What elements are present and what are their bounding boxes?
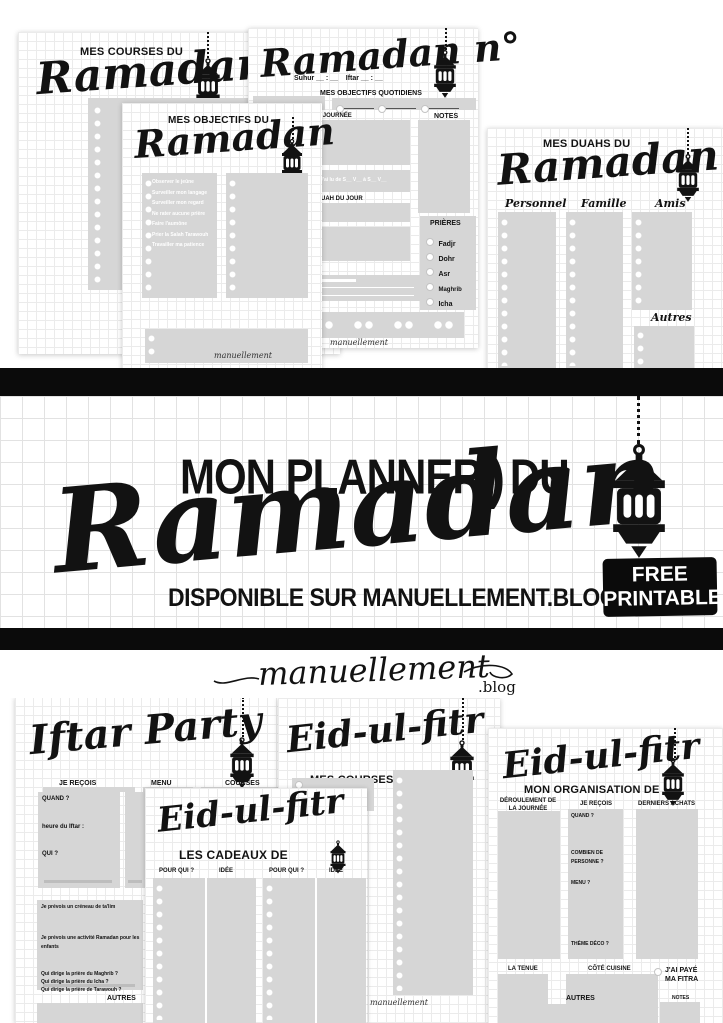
iftar-header-menu: MENU (151, 779, 172, 788)
courses-title: Ramadan (35, 42, 270, 102)
duahs-bullets (635, 329, 646, 367)
objectifs-title: Ramadan (133, 112, 336, 164)
eid-courses-bullets (394, 774, 405, 991)
doua-box (312, 203, 410, 222)
eid-orga-subtitle: MON ORGANISATION DE (524, 784, 660, 796)
faint-caption (43, 984, 135, 987)
prayer-label: Fadjr (438, 241, 455, 248)
objectifs-left-bullets (143, 177, 154, 295)
orga-col3-label: DERNIERS ACHATS (638, 801, 695, 809)
program-box (312, 227, 410, 261)
box-rule (318, 287, 414, 288)
orga-col1-box (498, 811, 560, 959)
page-eid-cadeaux: Eid-ul-fitr LES CADEAUX DE POUR QUI ? ID… (145, 788, 367, 1023)
lantern-chain (242, 697, 244, 737)
prayer-checkbox (426, 283, 434, 291)
faint-caption (128, 880, 142, 883)
fitra-row: J'AI PAYÉ MA FITRA (654, 966, 706, 984)
cadeaux-header-2: IDÉE (219, 868, 233, 876)
objectif-item: Faire l'aumône (152, 219, 217, 230)
notes-box (418, 120, 470, 213)
field-heure-iftar: heure du Iftar : (42, 824, 120, 832)
banner-bottom-bar (0, 628, 723, 650)
lantern-chain (292, 117, 294, 139)
duahs-col-label-personnel: Personnel (505, 198, 566, 209)
objectifs-bottom-bullets (146, 332, 157, 360)
banner-availability: DISPONIBLE SUR MANUELLEMENT.BLOG (168, 583, 617, 613)
orga-field: MENU ? (571, 879, 623, 888)
lantern-chain (637, 396, 640, 444)
flourish-left (212, 668, 260, 688)
prayer-checkbox (426, 238, 434, 246)
duahs-col-label-amis: Amis (655, 198, 686, 209)
courses-checkbox-column (92, 104, 103, 284)
orga-cuisine-label: CÔTÉ CUISINE (588, 966, 631, 974)
lantern-icon (675, 154, 701, 202)
faint-caption (44, 880, 112, 883)
menu-column-sliver (125, 792, 145, 888)
badge-line2: PRINTABLE (603, 586, 717, 612)
prayer-checkbox (426, 268, 434, 276)
page-mes-objectifs: MES OBJECTIFS DU Ramadan Observer le jeû… (122, 103, 322, 371)
ramadan-n-signature: manuellement (330, 338, 388, 347)
badge-line1: FREE (603, 562, 717, 588)
orga-field: QUAND ? (571, 812, 623, 821)
eid-courses-list-box (393, 770, 473, 995)
orga-col3-box (636, 809, 698, 959)
hadith-box (312, 275, 420, 301)
cadeaux-table-2-bullets (264, 882, 275, 1020)
objectif-item: Surveiller mon langage (152, 188, 217, 199)
iftar-label: Iftar __ : __ (346, 75, 383, 82)
eid-cadeaux-title: Eid-ul-fitr (156, 784, 345, 837)
iftar-header-courses: COURSES (225, 779, 260, 788)
iftar-autres-box (37, 1003, 143, 1023)
objectifs-signature: manuellement (214, 351, 272, 360)
fitra-checkbox (654, 968, 662, 976)
prayers-title: PRIÈRES (430, 219, 461, 228)
orga-col2-box: QUAND ? COMBIEN DE PERSONNE ? MENU ? THÈ… (568, 809, 623, 959)
objectifs-right-bullets (227, 177, 238, 295)
iftar-autres-label: AUTRES (107, 994, 136, 1003)
objectif-item: Travailler ma patience (152, 240, 217, 251)
iftar-planning-panel: Je prévois un créneau de ta'lim Je prévo… (37, 900, 143, 990)
objective-checkbox (421, 105, 429, 113)
planning-line: Je prévois une activité Ramadan pour les… (41, 934, 143, 952)
orga-field: COMBIEN DE PERSONNE ? (571, 849, 623, 867)
eid-courses-signature: manuellement (370, 998, 428, 1007)
cadeaux-header-4: IDÉE (329, 868, 343, 876)
prayer-question: Qui dirige la prière de Tarawouh ? (41, 986, 143, 994)
suhur-time: Suhur __ : __ Iftar __ : __ (294, 74, 383, 83)
objectif-item: Ne rater aucune prière (152, 209, 217, 220)
prayer-question: Qui dirige la prière du Maghrib ? (41, 970, 143, 978)
prayer-label: Asr (438, 271, 450, 278)
tracker-bar (312, 312, 464, 338)
cadeaux-header-1: POUR QUI ? (159, 868, 194, 876)
duahs-col-label-famille: Famille (581, 198, 627, 209)
lantern-icon (432, 50, 458, 98)
duahs-col-label-autres: Autres (651, 312, 692, 323)
fitra-label: J'AI PAYÉ MA FITRA (665, 966, 706, 984)
cadeaux-table-2 (263, 878, 366, 1023)
orga-col2-label: JE REÇOIS (580, 801, 612, 809)
lantern-chain (687, 128, 689, 154)
orga-autres-label: AUTRES (566, 994, 595, 1003)
banner: MON PLANNER ) DU Ramadan DISPONIBLE SUR … (0, 396, 723, 628)
poster-canvas: MES COURSES DU Ramadan manuellement Rama… (0, 0, 723, 1023)
je-recois-box: QUAND ? heure du Iftar : QUI ? (38, 792, 120, 888)
objective-checkbox (378, 105, 386, 113)
page-mes-duahs: MES DUAHS DU Ramadan Personnel Famille A… (487, 128, 723, 370)
cadeaux-table-1-bullets (154, 882, 165, 1020)
orga-autres-wrap: AUTRES (488, 992, 723, 1023)
table-divider (315, 878, 317, 1023)
table-divider (205, 878, 207, 1023)
duahs-bullets (567, 216, 578, 366)
objectifs-right-column (226, 173, 308, 298)
coran-box: J'ai lu de S__ V__ à S__ V__ (312, 170, 410, 192)
eid-cadeaux-subtitle: LES CADEAUX DE (179, 848, 288, 862)
objectif-item: Prier la Salah Tarawouh (152, 230, 217, 241)
prayer-checkbox (426, 298, 434, 306)
cadeaux-header-3: POUR QUI ? (269, 868, 304, 876)
logo-suffix: .blog (478, 678, 516, 696)
prayer-label: Dohr (438, 256, 454, 263)
box-rule (318, 295, 414, 296)
field-quand: QUAND ? (42, 796, 120, 804)
free-printable-badge: FREE PRINTABLE (603, 557, 718, 617)
coran-line: J'ai lu de S__ V__ à S__ V__ (320, 175, 410, 186)
logo-script: manuellement (258, 650, 491, 690)
lantern-chain (462, 698, 464, 740)
suhur-label: Suhur __ : __ (294, 75, 338, 82)
prayer-label: Icha (438, 301, 452, 308)
lantern-chain (207, 32, 209, 58)
box-label-bar (318, 279, 356, 282)
objectif-item: Observer le jeûne (152, 177, 217, 188)
orga-field: THÈME DÉCO ? (571, 940, 623, 949)
duahs-bullets (633, 216, 644, 306)
lantern-icon (608, 444, 670, 558)
lantern-chain (445, 28, 447, 50)
objective-checkbox (336, 105, 344, 113)
banner-title: Ramadan (48, 422, 669, 591)
cadeaux-table-1 (153, 878, 256, 1023)
logo-strip: manuellement .blog (0, 650, 723, 698)
field-qui: QUI ? (42, 851, 120, 859)
iftar-header-je-recois: JE REÇOIS (59, 779, 96, 788)
banner-top-bar (0, 368, 723, 396)
objectif-item: Surveiller mon regard (152, 198, 217, 209)
orga-tenue-label: LA TENUE (508, 966, 538, 974)
prayer-row-icha: Icha (426, 293, 452, 311)
orga-autres-box (498, 1004, 658, 1023)
page-eid-organisation: Eid-ul-fitr MON ORGANISATION DE DÉROULEM… (488, 728, 723, 1023)
prayer-checkbox (426, 253, 434, 261)
planning-line: Je prévois un créneau de ta'lim (41, 903, 143, 912)
duahs-bullets (499, 216, 510, 366)
